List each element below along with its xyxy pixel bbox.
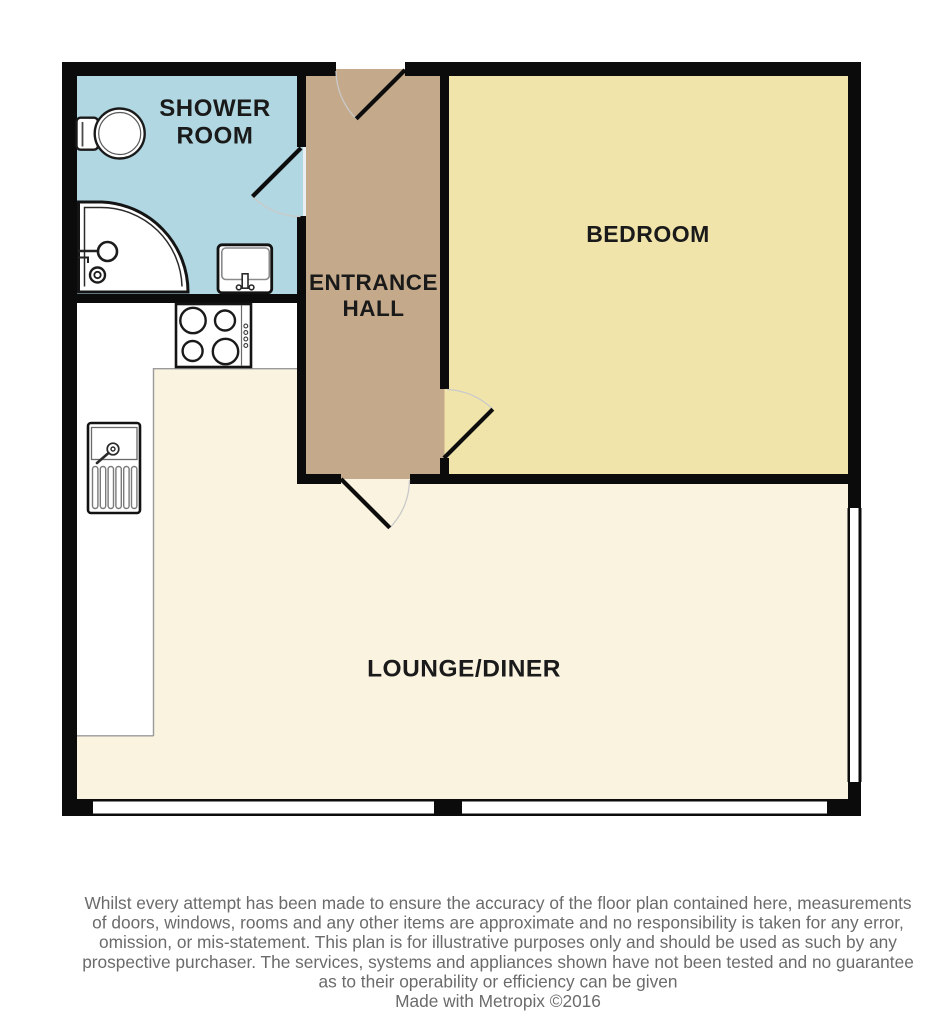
svg-text:SHOWER: SHOWER bbox=[159, 95, 271, 122]
svg-text:ROOM: ROOM bbox=[176, 123, 253, 150]
svg-text:of doors, windows, rooms and a: of doors, windows, rooms and any other i… bbox=[92, 913, 904, 933]
svg-text:LOUNGE/DINER: LOUNGE/DINER bbox=[367, 656, 561, 683]
svg-text:omission, or mis-statement. Th: omission, or mis-statement. This plan is… bbox=[99, 932, 897, 952]
svg-text:as to their operability or eff: as to their operability or efficiency ca… bbox=[319, 971, 678, 991]
svg-text:prospective purchaser. The ser: prospective purchaser. The services, sys… bbox=[82, 952, 914, 972]
svg-text:Whilst every attempt has been: Whilst every attempt has been made to en… bbox=[84, 893, 911, 913]
svg-text:ENTRANCE: ENTRANCE bbox=[309, 270, 438, 295]
svg-text:BEDROOM: BEDROOM bbox=[586, 221, 710, 247]
svg-text:Made with Metropix ©2016: Made with Metropix ©2016 bbox=[395, 991, 601, 1011]
svg-text:HALL: HALL bbox=[343, 296, 405, 321]
